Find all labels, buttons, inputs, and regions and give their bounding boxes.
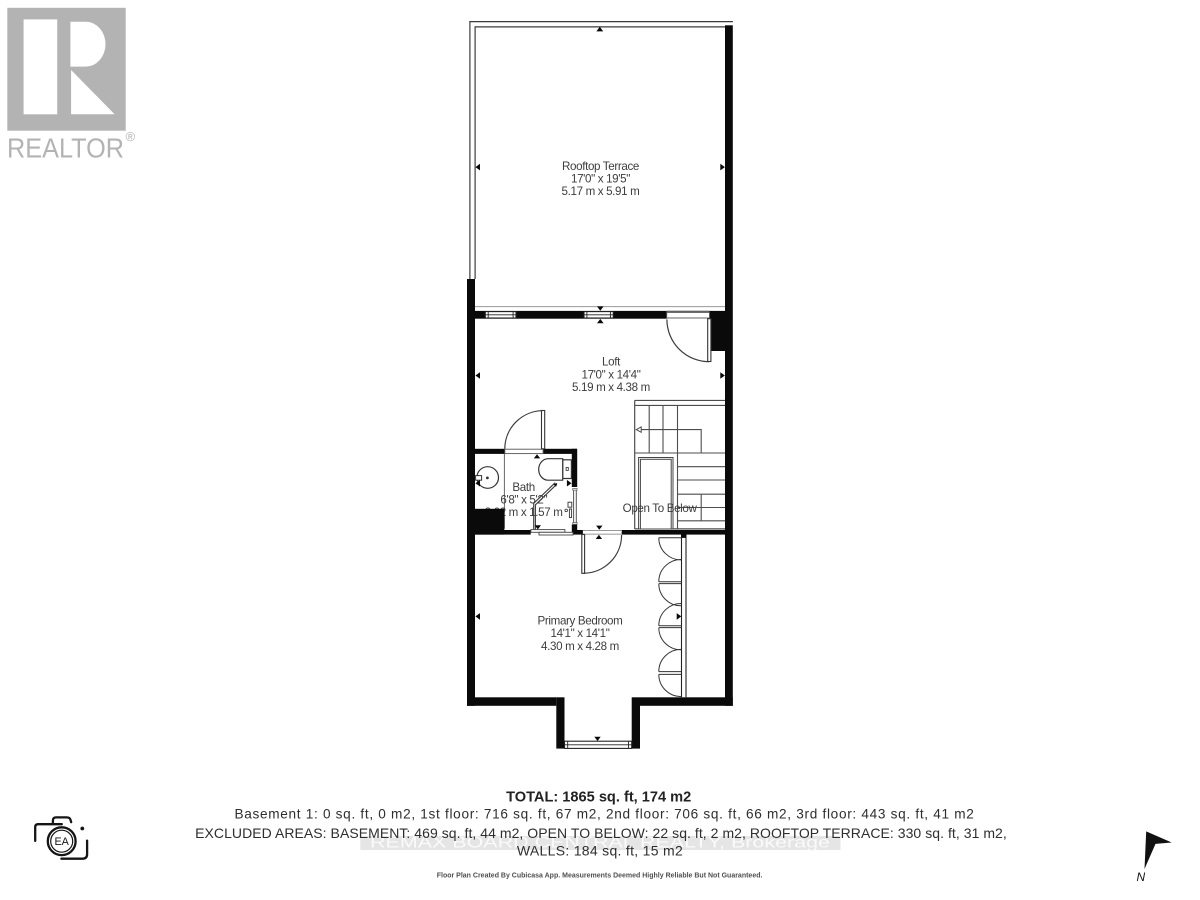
svg-text:6'8" x 5'2": 6'8" x 5'2" (500, 494, 547, 507)
svg-text:14'1" x 14'1": 14'1" x 14'1" (550, 627, 609, 640)
svg-text:Basement 1: 0 sq. ft, 0 m2, 1s: Basement 1: 0 sq. ft, 0 m2, 1st floor: 7… (234, 807, 974, 822)
svg-text:Bath: Bath (512, 481, 534, 494)
svg-text:REALTOR: REALTOR (7, 133, 124, 164)
svg-text:4.30 m x 4.28 m: 4.30 m x 4.28 m (541, 640, 619, 653)
svg-text:5.19 m x 4.38 m: 5.19 m x 4.38 m (572, 381, 650, 394)
svg-text:WALLS: 184 sq. ft, 15 m2: WALLS: 184 sq. ft, 15 m2 (517, 843, 683, 859)
svg-text:Open To Below: Open To Below (623, 502, 698, 515)
svg-text:TOTAL: 1865 sq. ft, 174 m2: TOTAL: 1865 sq. ft, 174 m2 (506, 790, 691, 806)
svg-text:®: ® (126, 129, 136, 144)
svg-text:EXCLUDED AREAS: BASEMENT: 469: EXCLUDED AREAS: BASEMENT: 469 sq. ft, 44… (195, 825, 1007, 841)
svg-text:Rooftop Terrace: Rooftop Terrace (562, 160, 639, 173)
svg-text:Loft: Loft (602, 356, 621, 369)
svg-text:N: N (1136, 870, 1145, 884)
svg-text:Floor Plan Created By Cubicasa: Floor Plan Created By Cubicasa App. Meas… (437, 873, 763, 880)
svg-text:17'0" x 19'5": 17'0" x 19'5" (571, 172, 630, 185)
svg-text:EA: EA (54, 836, 69, 848)
svg-text:Primary Bedroom: Primary Bedroom (538, 615, 623, 628)
svg-text:17'0" x 14'4": 17'0" x 14'4" (581, 369, 640, 382)
svg-text:5.17 m x 5.91 m: 5.17 m x 5.91 m (562, 185, 640, 198)
